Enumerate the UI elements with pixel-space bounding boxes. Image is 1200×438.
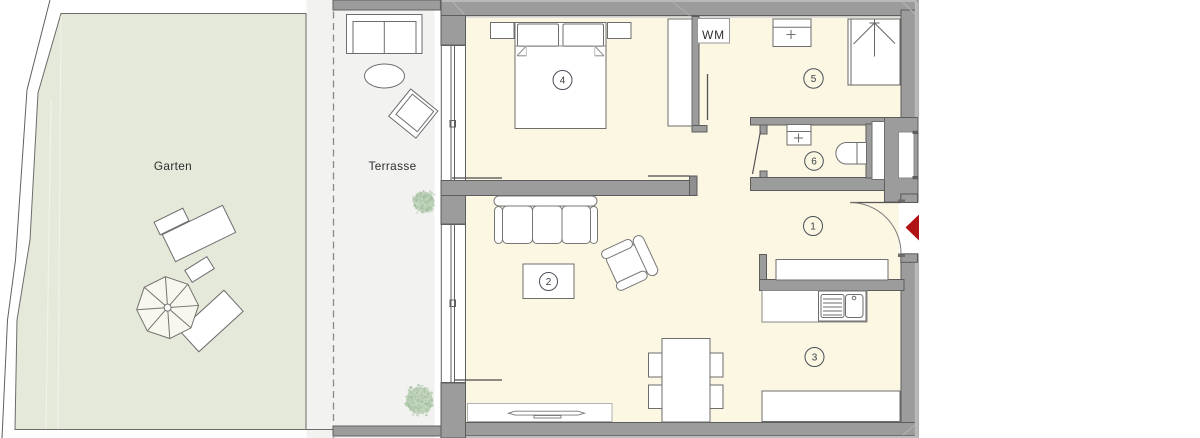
svg-text:1: 1 xyxy=(810,222,816,233)
svg-text:4: 4 xyxy=(560,76,566,87)
svg-text:3: 3 xyxy=(812,353,818,364)
svg-text:2: 2 xyxy=(546,277,552,288)
svg-text:Garten: Garten xyxy=(154,159,192,173)
svg-text:5: 5 xyxy=(811,74,817,85)
svg-text:Terrasse: Terrasse xyxy=(368,159,416,173)
svg-text:6: 6 xyxy=(811,157,817,168)
svg-text:WM: WM xyxy=(702,28,725,42)
